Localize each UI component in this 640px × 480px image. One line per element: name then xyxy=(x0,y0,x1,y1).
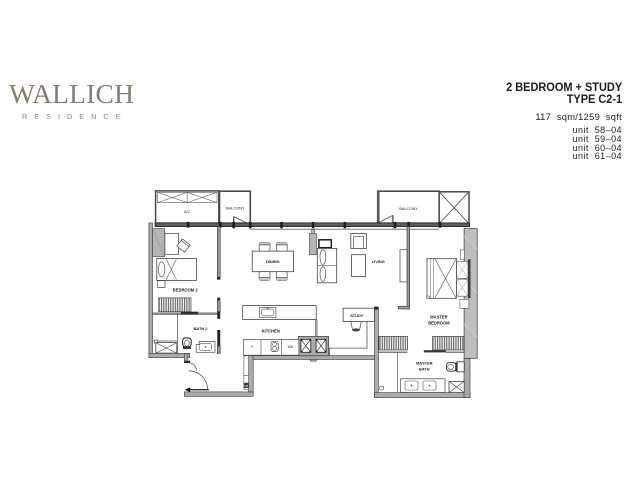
svg-text:KITCHEN: KITCHEN xyxy=(262,328,280,333)
svg-text:MASTER: MASTER xyxy=(430,314,447,319)
svg-text:LIVING: LIVING xyxy=(372,259,385,264)
svg-text:MASTER: MASTER xyxy=(416,360,433,365)
svg-text:BEDROOM: BEDROOM xyxy=(428,321,450,326)
svg-text:A/C: A/C xyxy=(184,209,191,214)
svg-text:BALCONY: BALCONY xyxy=(226,206,245,211)
svg-text:DB: DB xyxy=(244,384,248,388)
svg-text:BALCONY: BALCONY xyxy=(399,206,418,211)
svg-text:BATH: BATH xyxy=(419,366,430,371)
svg-text:BEDROOM 2: BEDROOM 2 xyxy=(173,287,199,292)
svg-text:WD: WD xyxy=(288,345,294,349)
svg-text:STUDY: STUDY xyxy=(350,313,364,318)
svg-text:DINING: DINING xyxy=(266,259,280,264)
svg-text:BATH 2: BATH 2 xyxy=(194,326,209,331)
